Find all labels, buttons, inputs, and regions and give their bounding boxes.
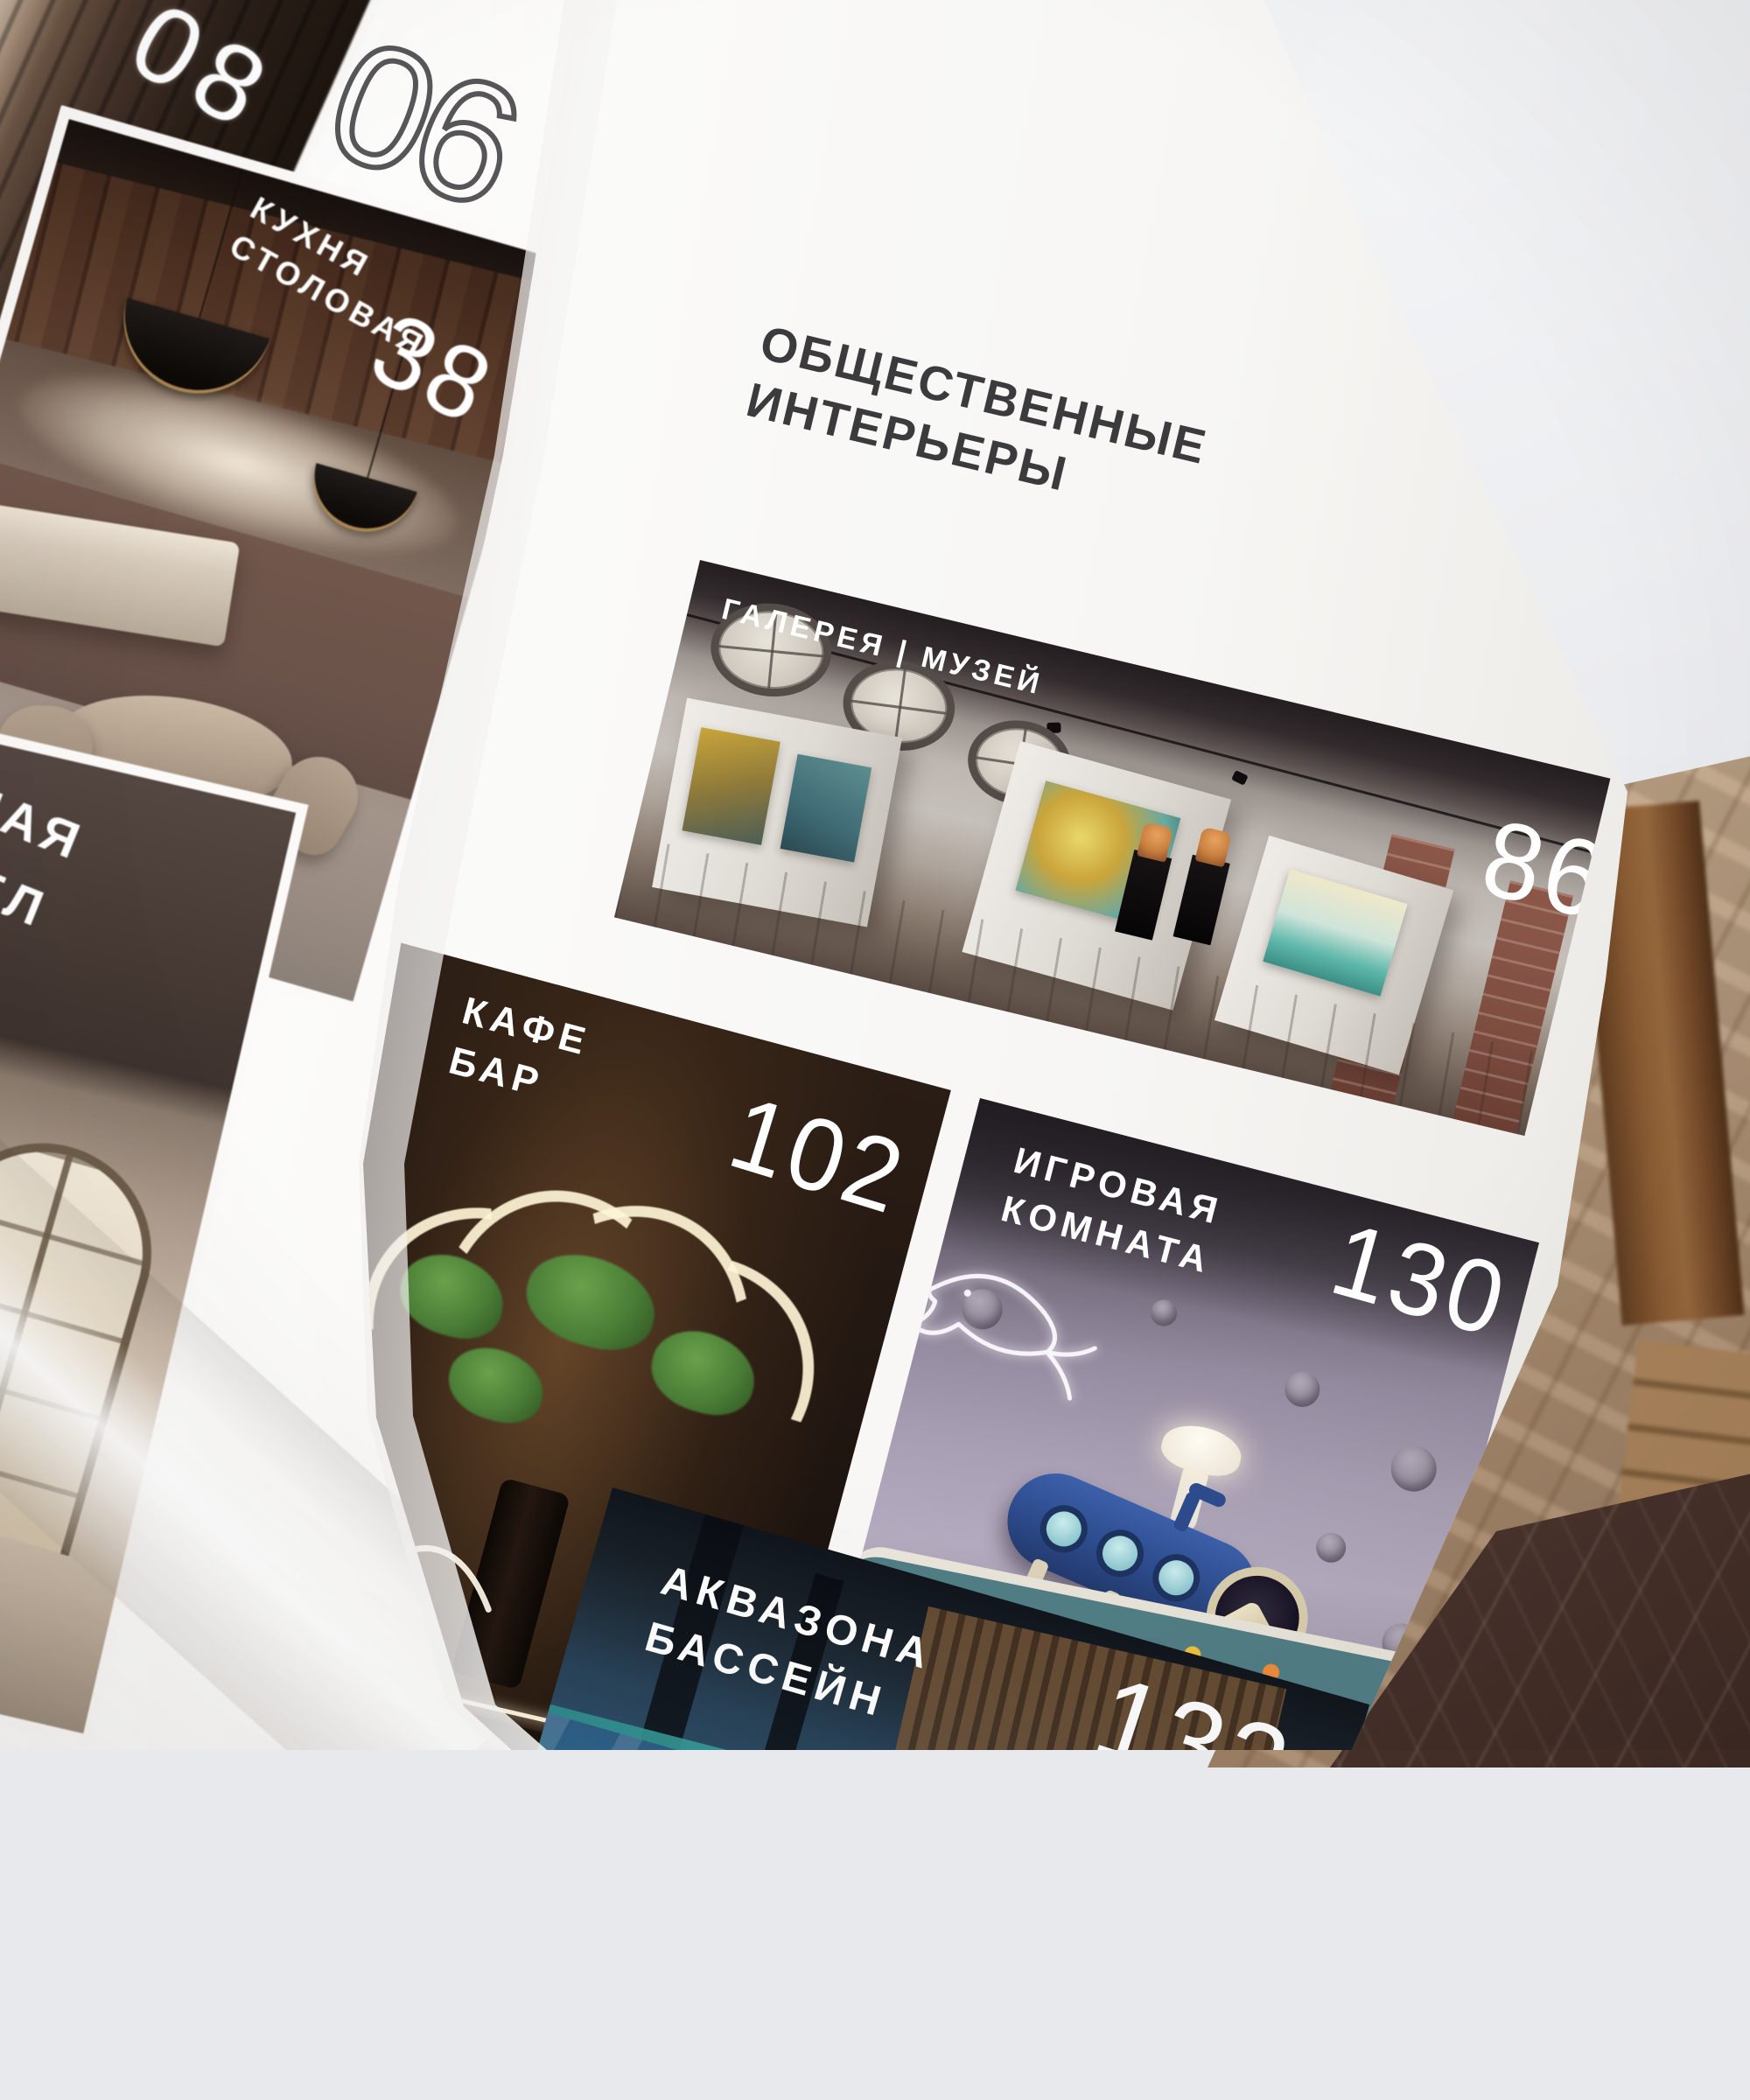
- shelf-light-strip: [197, 1806, 640, 1921]
- cafe-screen: [488, 1907, 615, 2006]
- bathroom-label-line1: НАЯ: [0, 772, 92, 871]
- bathroom-tile-label: НАЯ ЗЕЛ: [0, 763, 95, 951]
- pool-water: [499, 1713, 1305, 2100]
- wall-bubble: [1312, 1529, 1348, 1565]
- page-number-132: 132: [1081, 1649, 1308, 1836]
- arched-window: [0, 1117, 178, 1556]
- abstract-painting: [682, 727, 780, 845]
- section-title: ОБЩЕСТВЕННЫЕ ИНТЕРЬЕРЫ: [741, 313, 1214, 535]
- bottle-shelf: [335, 1865, 557, 1955]
- wall-bubble: [1281, 1368, 1324, 1410]
- cafe-plant: [580, 1849, 712, 1963]
- cafe-tile-label: КАФЕ БАР: [444, 985, 597, 1119]
- wall-bubble: [1386, 1441, 1441, 1496]
- abstract-painting: [780, 754, 872, 863]
- seascape-painting: [1263, 869, 1407, 996]
- page-number-102: 102: [717, 1073, 919, 1238]
- page-number-86: 86: [1471, 795, 1610, 945]
- bathroom-photo: НАЯ ЗЕЛ: [0, 717, 309, 1746]
- track-spotlight: [1231, 770, 1249, 786]
